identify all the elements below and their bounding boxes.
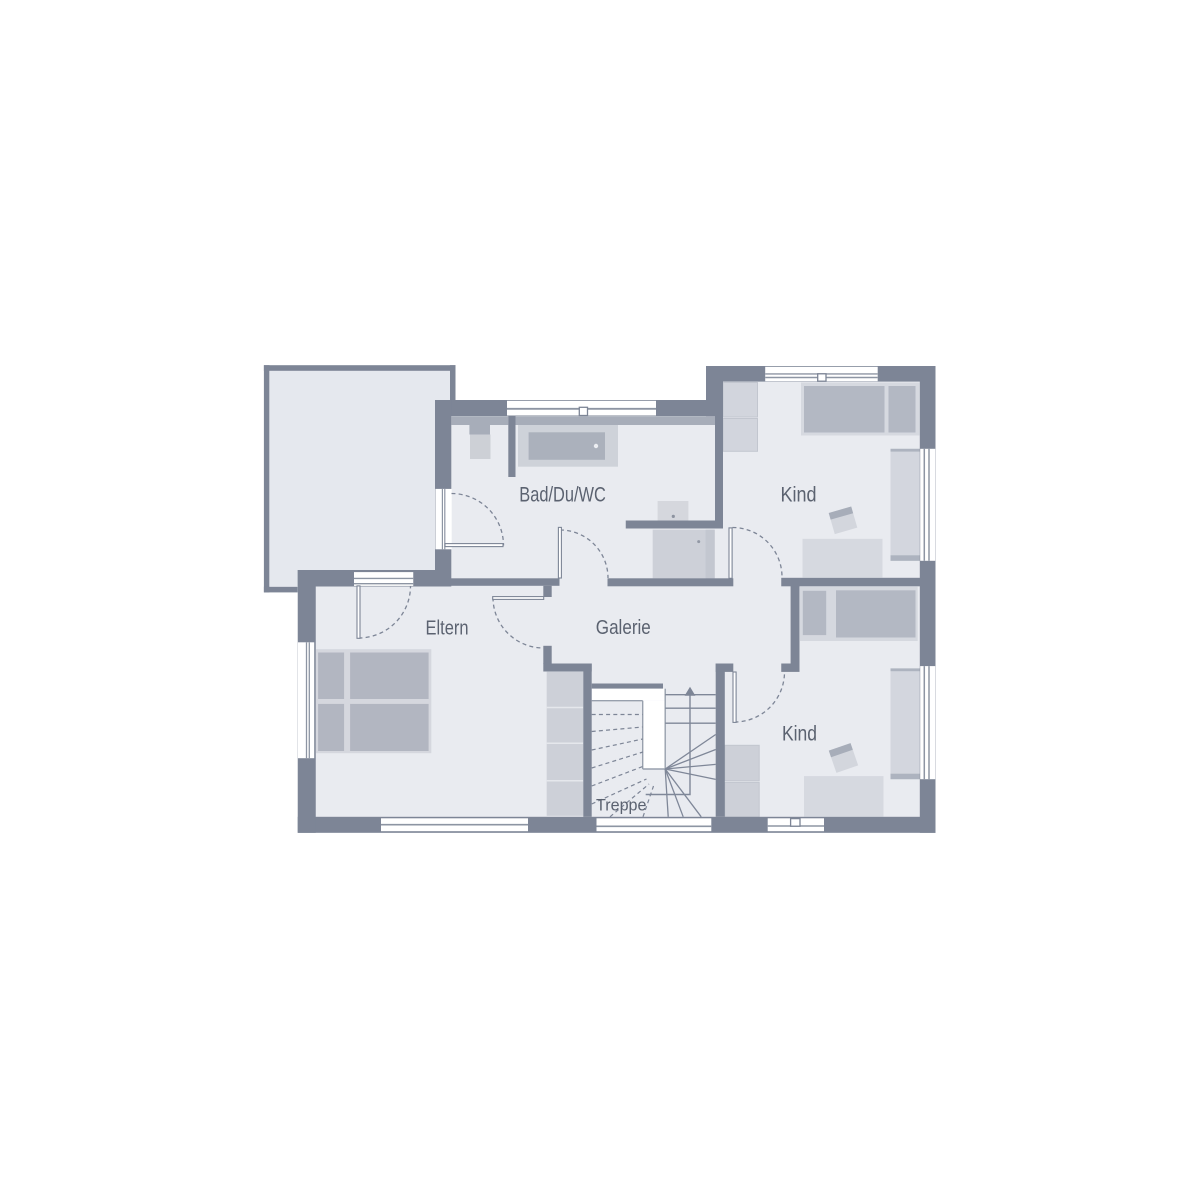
svg-text:Bad/Du/WC: Bad/Du/WC <box>519 483 606 506</box>
svg-text:Treppe: Treppe <box>596 796 647 815</box>
svg-text:Kind: Kind <box>781 484 817 507</box>
svg-text:Eltern: Eltern <box>426 617 469 640</box>
svg-text:Kind: Kind <box>782 723 817 746</box>
svg-text:Galerie: Galerie <box>596 616 651 639</box>
